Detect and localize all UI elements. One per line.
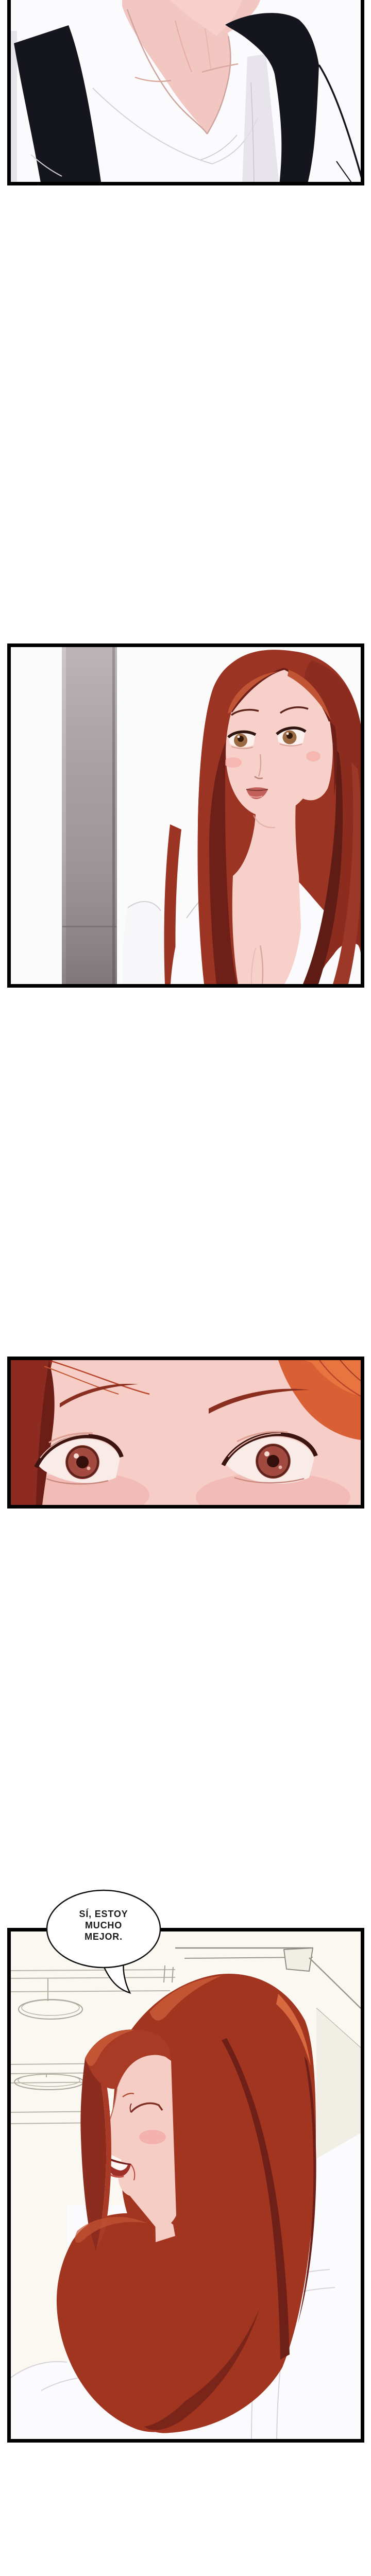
svg-text:MUCHO: MUCHO bbox=[85, 1920, 122, 1930]
svg-text:MEJOR.: MEJOR. bbox=[85, 1931, 123, 1942]
svg-text:SÍ, ESTOY: SÍ, ESTOY bbox=[79, 1908, 128, 1919]
